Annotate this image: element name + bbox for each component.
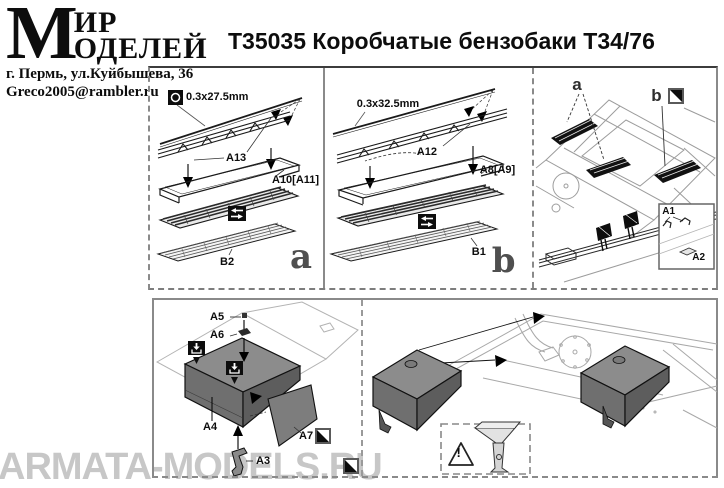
part-label-a7: A7: [299, 430, 313, 442]
flip-over-icon: [418, 214, 436, 234]
etched-part-icon-b: [668, 88, 684, 104]
pin-a5-part: [242, 313, 247, 318]
etched-flag-parts: [596, 211, 639, 251]
brand-logo: МИРОДЕЛЕЙ: [6, 4, 208, 64]
clamp-a6-part: [238, 328, 251, 336]
brand-email: Greco2005@rambler.ru: [6, 84, 159, 101]
part-label-a4: A4: [203, 421, 217, 433]
part-label-a1: A1: [662, 206, 675, 218]
step2-panels: A5 A6 A4 A7 A3: [152, 298, 718, 478]
part-label-a6: A6: [210, 329, 224, 341]
step1-panels: 0.3x27.5mm A13 A10[A11] B2 a: [148, 66, 718, 290]
bracket-a3-part: [232, 448, 247, 476]
wire-rod-drawing: [333, 89, 495, 137]
fold-icon: [226, 361, 243, 390]
brand-word-bottom: ОДЕЛЕЙ: [74, 36, 208, 62]
etched-part-icon-corner: [343, 458, 359, 474]
page-title: Т35035 Коробчатые бензобаки Т34/76: [228, 28, 655, 55]
brand-initial: М: [6, 4, 78, 62]
deck-drawing: [534, 68, 717, 292]
wire-size-label-a: 0.3x27.5mm: [186, 91, 248, 103]
wire-size-label-b: 0.3x32.5mm: [357, 98, 419, 110]
part-label-a3: A3: [256, 455, 270, 467]
part-label-b1: B1: [472, 246, 486, 258]
part-label-a12: A12: [417, 146, 437, 158]
part-label-b2: B2: [220, 256, 234, 268]
panel-a: 0.3x27.5mm A13 A10[A11] B2 a: [150, 68, 323, 288]
warning-inset: [441, 422, 530, 474]
warning-exclamation: !: [457, 447, 461, 459]
panel-letter-a: a: [290, 240, 312, 274]
part-label-a8: A8[A9]: [480, 164, 515, 176]
part-label-a5: A5: [210, 311, 224, 323]
instruction-sheet: МИРОДЕЛЕЙ г. Пермь, ул.Куйбышева, 36 Gre…: [0, 0, 724, 488]
fuel-tank-left: [373, 350, 461, 430]
deck-grilles: [551, 119, 701, 183]
part-label-a13: A13: [226, 152, 246, 164]
panel-b: 0.3x32.5mm A12 A8[A9] B1 b: [323, 68, 533, 288]
panel-tank-assembly: A5 A6 A4 A7 A3: [154, 300, 361, 476]
fold-icon: [188, 341, 205, 370]
wire-gauge-icon: [168, 90, 183, 105]
flip-over-icon: [228, 206, 246, 226]
part-label-a10: A10[A11]: [272, 174, 319, 186]
location-marker-b: b: [651, 87, 661, 104]
tank-assembly-drawing: [154, 300, 362, 476]
panel-deck-location: a b A1 A2: [532, 68, 716, 288]
location-marker-a: a: [572, 76, 581, 93]
panel-letter-b: b: [492, 244, 516, 278]
etched-part-icon-a7: [315, 428, 331, 444]
hull-mounting-drawing: [363, 300, 719, 476]
part-label-a2: A2: [692, 252, 705, 264]
fuel-tank-right: [581, 346, 669, 426]
panel-hull-mounting: !: [361, 300, 716, 476]
